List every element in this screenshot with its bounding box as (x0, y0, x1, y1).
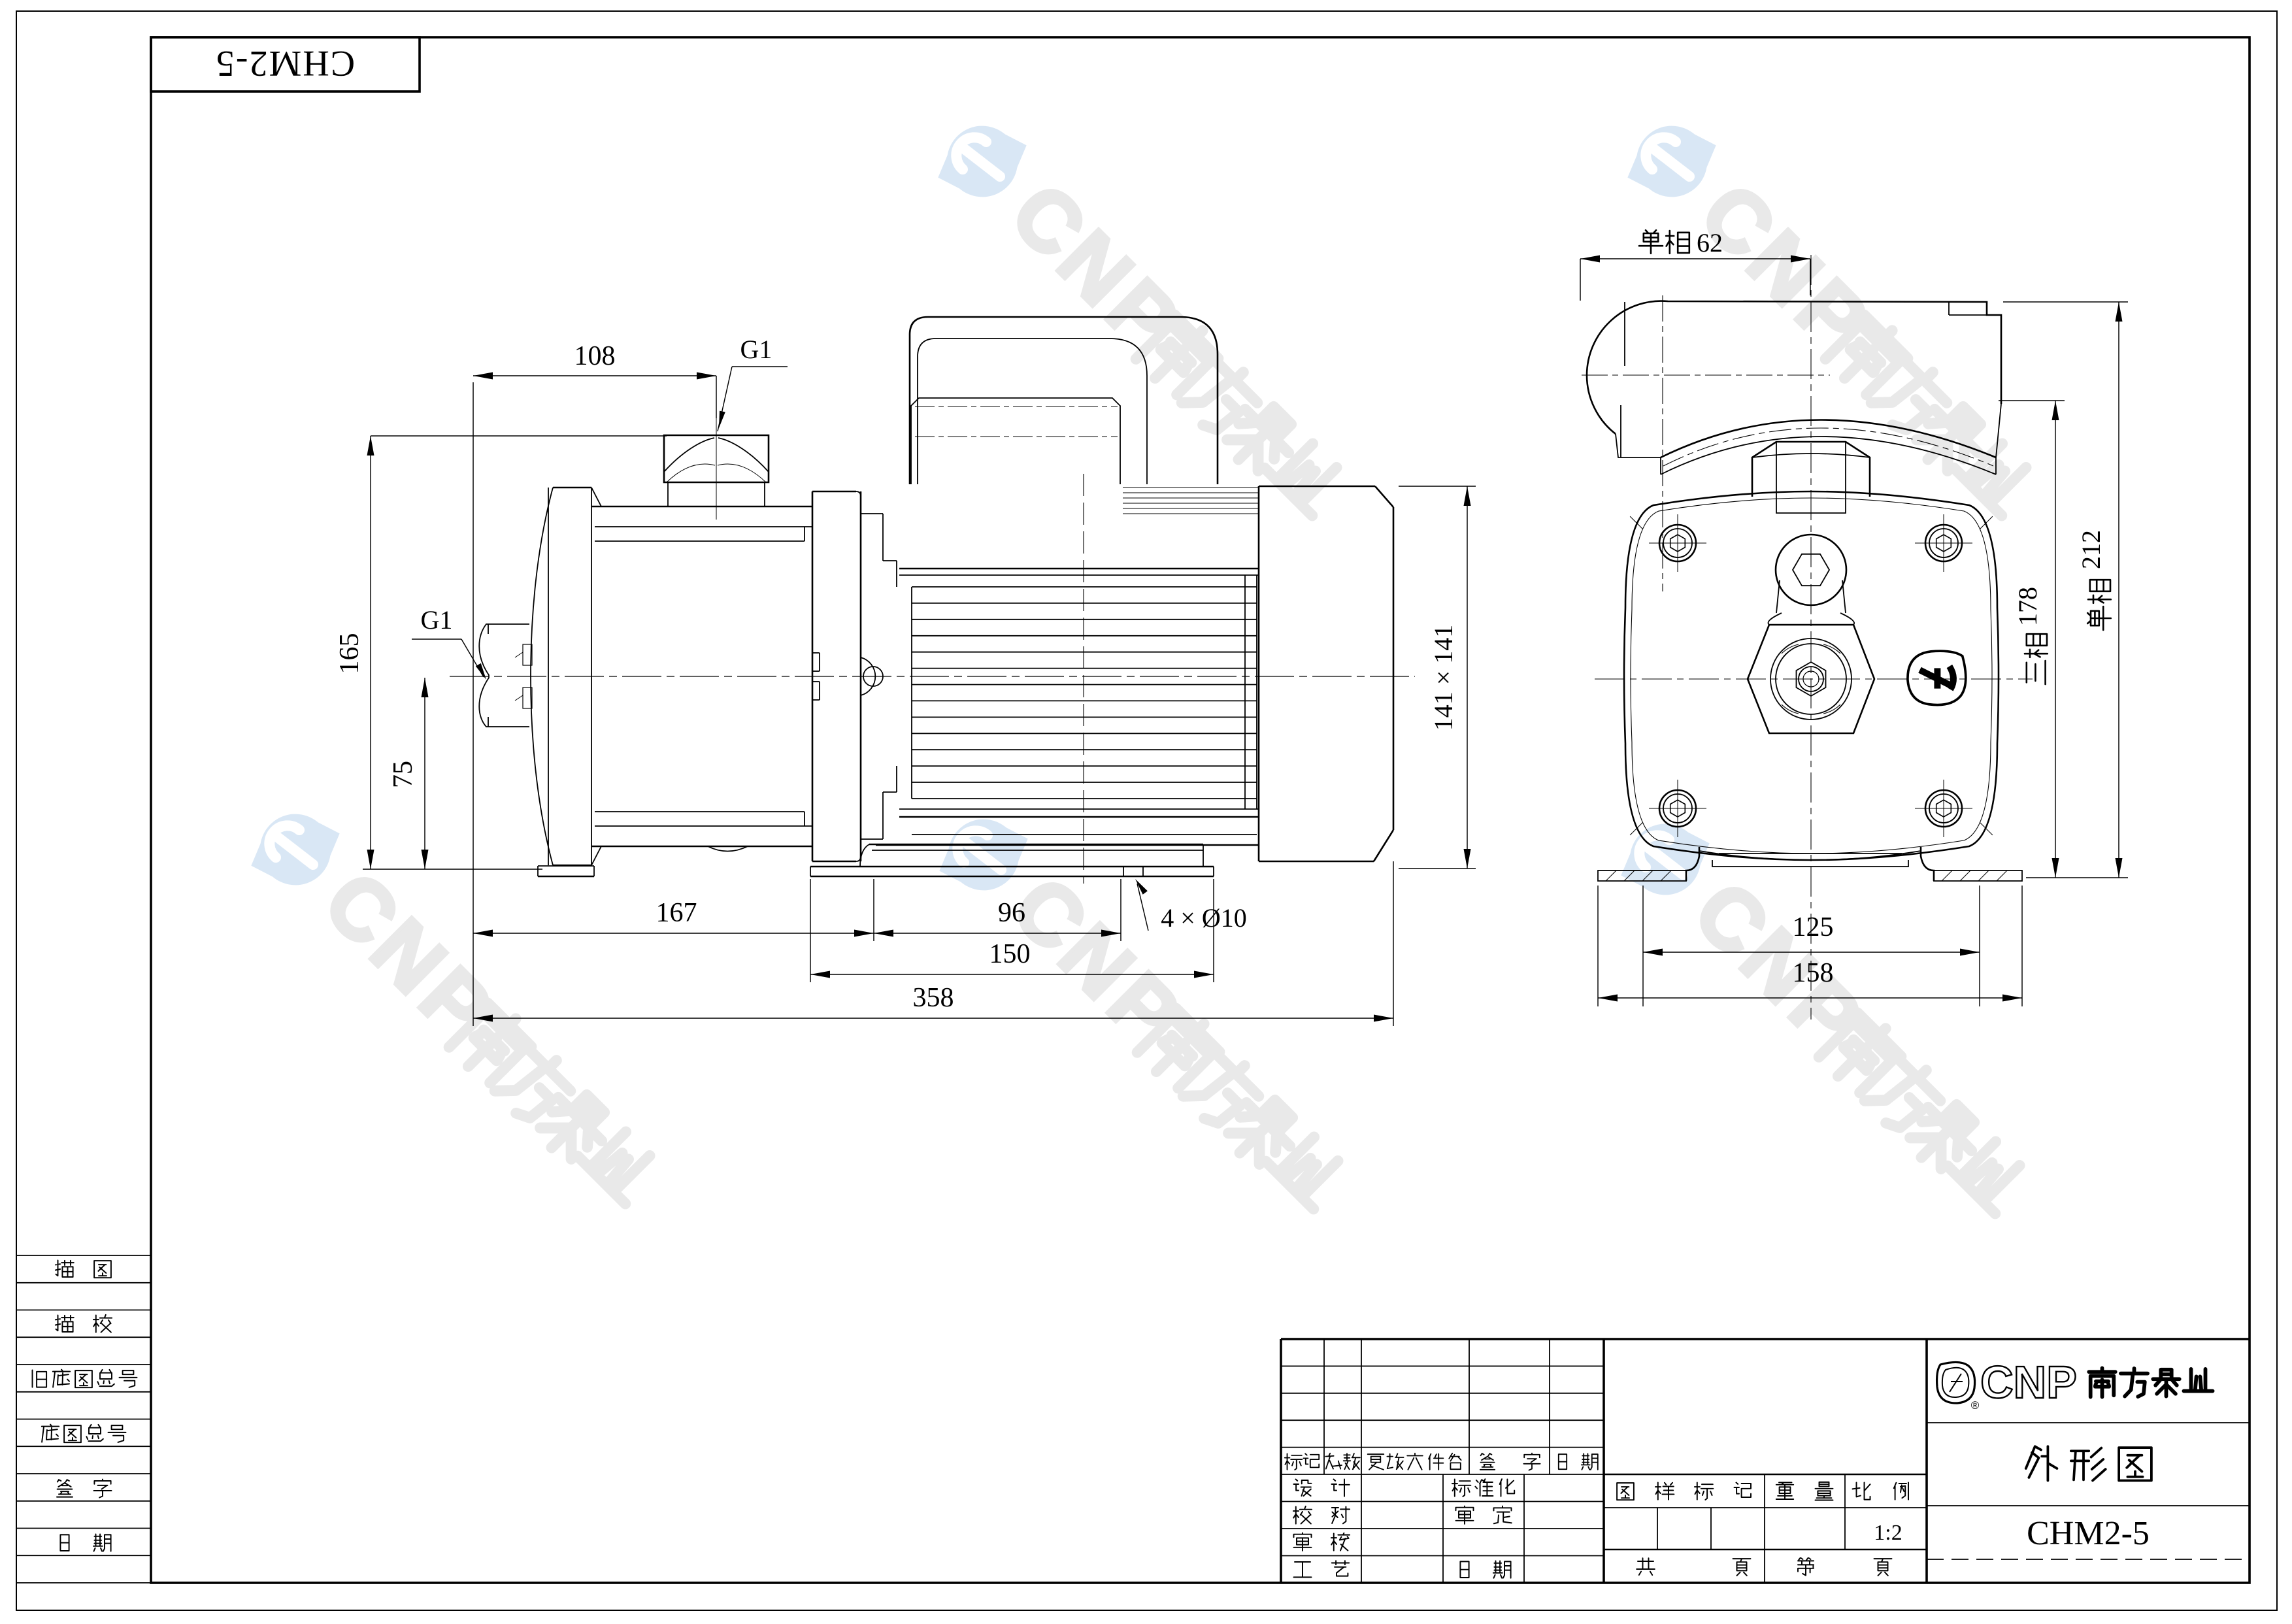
svg-text:®: ® (1971, 1399, 1980, 1412)
svg-text:1:2: 1:2 (1874, 1521, 1902, 1545)
svg-text:358: 358 (913, 983, 954, 1013)
svg-text:62: 62 (1697, 228, 1723, 257)
svg-text:G1: G1 (421, 605, 453, 635)
svg-text:167: 167 (656, 898, 697, 928)
svg-text:212: 212 (2076, 530, 2106, 569)
svg-text:150: 150 (989, 939, 1031, 969)
svg-text:CNP: CNP (1980, 1357, 2077, 1408)
svg-text:CHM2-5: CHM2-5 (215, 43, 355, 84)
svg-text:125: 125 (1793, 912, 1834, 942)
svg-text:G1: G1 (740, 335, 772, 364)
svg-text:96: 96 (998, 898, 1025, 928)
svg-text:4 × Ø10: 4 × Ø10 (1161, 903, 1246, 933)
svg-text:108: 108 (574, 341, 616, 371)
svg-text:178: 178 (2013, 587, 2042, 626)
svg-text:CHM2-5: CHM2-5 (2027, 1515, 2150, 1552)
svg-text:165: 165 (335, 633, 365, 674)
svg-text:158: 158 (1793, 958, 1834, 988)
svg-text:75: 75 (388, 761, 418, 788)
svg-text:141 × 141: 141 × 141 (1429, 625, 1458, 731)
